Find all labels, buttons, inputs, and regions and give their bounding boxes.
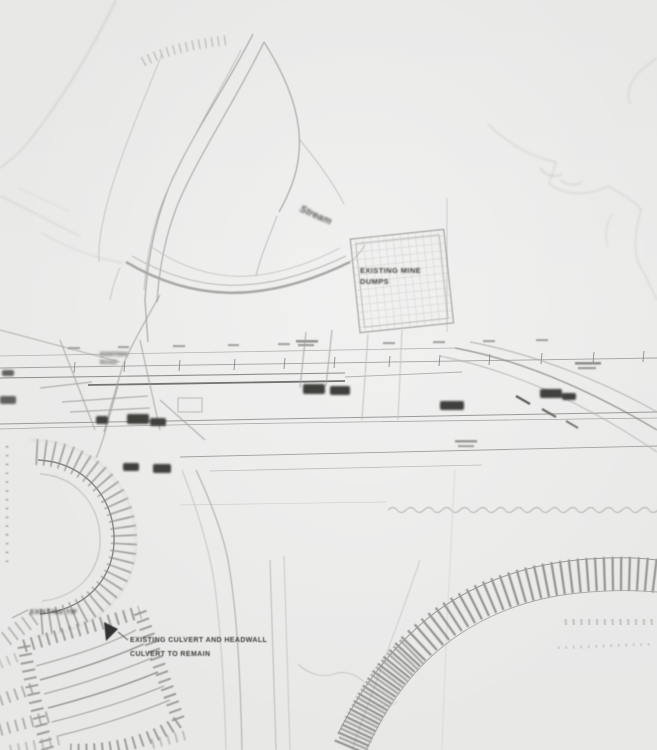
stream-note-text: Stream — [298, 204, 334, 228]
plot-edge-hatch — [24, 646, 48, 750]
site-plan-drawing: Stream EXISTING MINE DUMPS — [0, 0, 657, 750]
junction-label-line2: ROAD — [100, 360, 117, 366]
stream-bank-hatch — [143, 40, 228, 62]
wavy-boundary-line — [388, 508, 657, 513]
corridor-line — [0, 373, 345, 378]
dump-area-label-line1: EXISTING MINE — [360, 266, 421, 275]
chainage-ticks — [74, 351, 644, 373]
topleft-contour-lines — [0, 0, 124, 263]
ring-hatch-band — [36, 452, 124, 622]
bottom-centre-lines — [182, 470, 657, 750]
culvert-label-line2: CULVERT TO REMAIN — [130, 651, 210, 658]
plan-scan: Stream EXISTING MINE DUMPS — [0, 0, 657, 750]
stream-note: Stream — [298, 204, 334, 228]
dump-area: EXISTING MINE DUMPS — [350, 229, 453, 332]
structure-symbol-marks — [0, 370, 576, 473]
terraced-plot — [0, 612, 190, 750]
junction-cluster: EXISTING ROAD — [0, 295, 402, 458]
tip-label: EXISTING TIP — [30, 609, 77, 616]
culvert-label-line1: EXISTING CULVERT AND HEADWALL — [130, 637, 268, 644]
slope-hatch-band — [338, 558, 657, 750]
dump-area-label-line2: DUMPS — [360, 277, 389, 286]
plot-annotations: EXISTING TIP EXISTING CULVERT AND HEADWA… — [12, 609, 268, 658]
left-edge-hatch — [6, 446, 8, 566]
junction-label-line1: EXISTING — [100, 352, 128, 358]
topright-contours — [488, 58, 657, 300]
plot-edge-hatch — [140, 612, 180, 724]
plot-terrace-contours — [36, 630, 170, 736]
